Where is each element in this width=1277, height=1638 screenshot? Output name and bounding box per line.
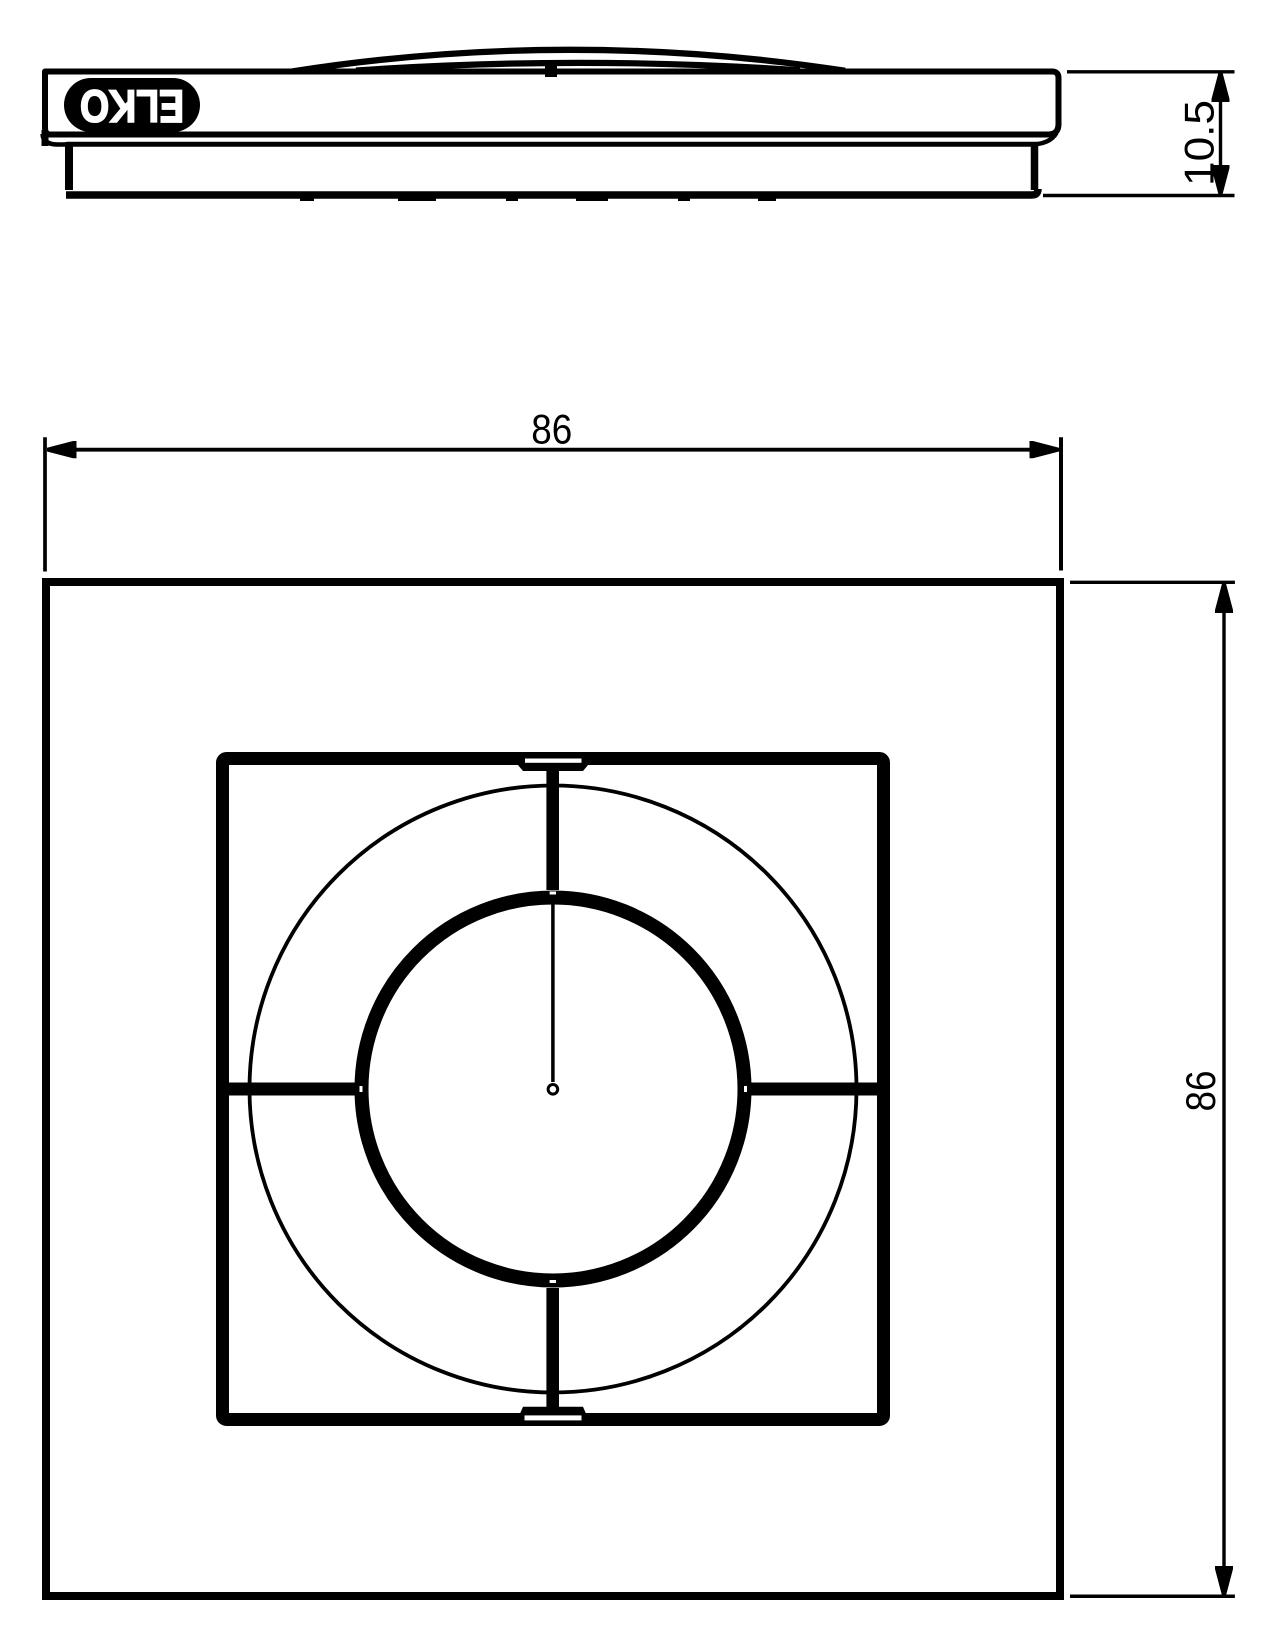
svg-text:86: 86	[531, 406, 572, 453]
svg-text:86: 86	[1177, 1071, 1224, 1112]
svg-text:10.5: 10.5	[1176, 100, 1223, 186]
svg-text:ELKO: ELKO	[80, 81, 184, 132]
